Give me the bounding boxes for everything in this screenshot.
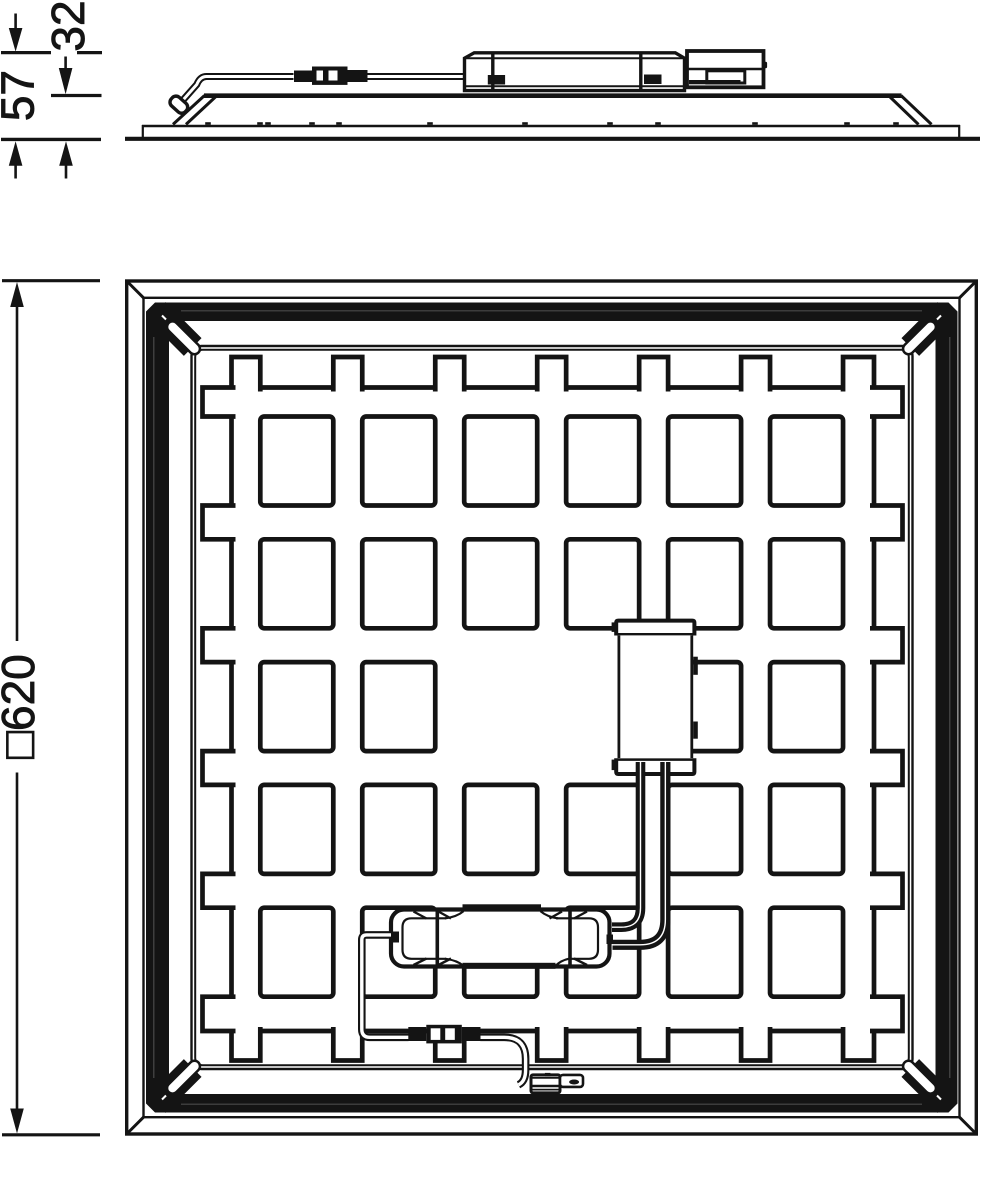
svg-text:□620: □620 <box>0 654 44 759</box>
svg-text:32: 32 <box>42 0 94 51</box>
svg-text:57: 57 <box>0 70 44 121</box>
